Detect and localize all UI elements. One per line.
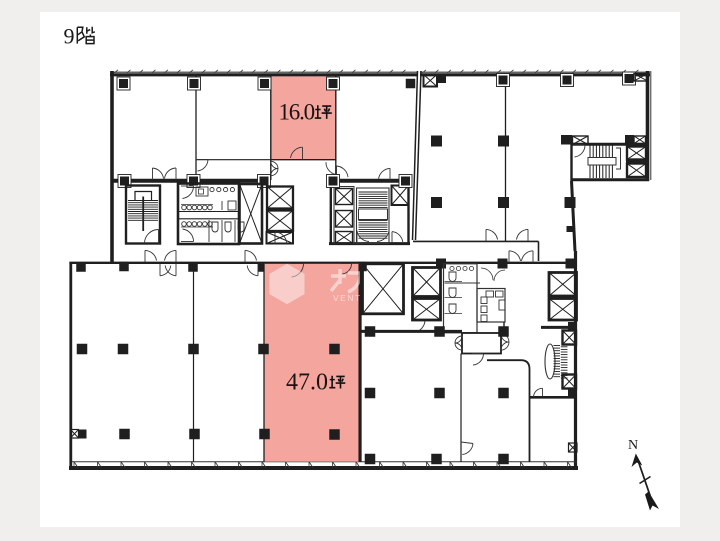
svg-text:N: N — [628, 438, 638, 453]
svg-text:9: 9 — [64, 24, 75, 49]
svg-text:VENT: VENT — [333, 293, 362, 303]
svg-text:16.0: 16.0 — [279, 100, 315, 125]
svg-text:47.0: 47.0 — [286, 370, 328, 396]
